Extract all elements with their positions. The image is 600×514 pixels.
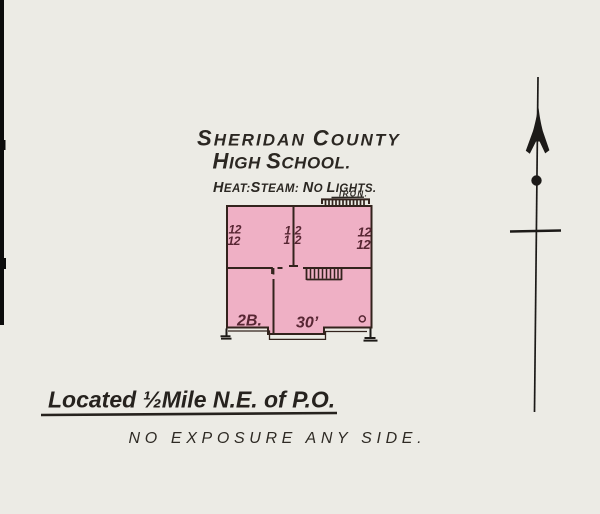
svg-text:Located ½Mile N.E. of P.O.: Located ½Mile N.E. of P.O. — [48, 387, 335, 413]
svg-text:2: 2 — [294, 233, 302, 247]
svg-text:12: 12 — [357, 237, 372, 252]
svg-text:30’: 30’ — [296, 315, 319, 332]
svg-text:NO EXPOSURE ANY SIDE.: NO EXPOSURE ANY SIDE. — [129, 430, 427, 447]
svg-text:2B.: 2B. — [236, 313, 262, 330]
svg-text:12: 12 — [228, 234, 241, 248]
svg-text:1: 1 — [284, 233, 291, 247]
